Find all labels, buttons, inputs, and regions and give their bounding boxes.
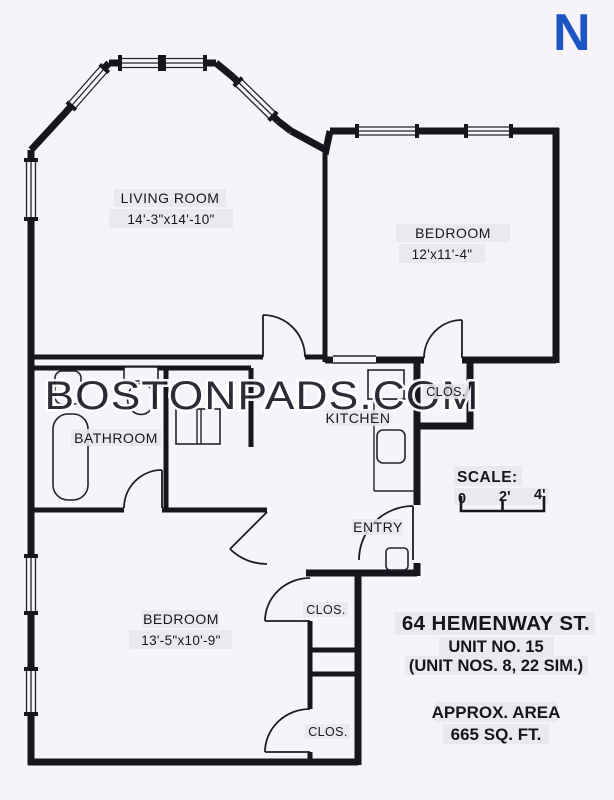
floor-plan-svg: BOSTONPADS.COM LIVING ROOM 14'-3"x14'-10… bbox=[0, 0, 614, 800]
address-similar-units: (UNIT NOS. 8, 22 SIM.) bbox=[409, 657, 583, 675]
floor-plan-page: BOSTONPADS.COM LIVING ROOM 14'-3"x14'-10… bbox=[0, 0, 614, 800]
bedroom1-window-1 bbox=[357, 124, 417, 138]
bedroom1-label: BEDROOM bbox=[415, 225, 491, 241]
kitchen-sink-fixture bbox=[377, 430, 405, 463]
bathroom-label: BATHROOM bbox=[74, 430, 158, 446]
bedroom2-window-2 bbox=[24, 669, 38, 714]
bay-window-right bbox=[234, 78, 277, 121]
living-room-label: LIVING ROOM bbox=[121, 190, 220, 206]
north-indicator: N bbox=[553, 4, 591, 62]
bedroom1-window-2 bbox=[466, 124, 511, 138]
address-block: 64 HEMENWAY ST. UNIT NO. 15 (UNIT NOS. 8… bbox=[395, 612, 595, 744]
living-room-door bbox=[263, 315, 305, 357]
bathroom-door bbox=[124, 470, 162, 508]
bedroom2-door bbox=[230, 512, 267, 564]
bedroom2-window-1 bbox=[24, 556, 38, 613]
address-area-label: APPROX. AREA bbox=[432, 703, 561, 722]
cased-opening bbox=[333, 356, 376, 363]
bedroom1-closet-label: CLOS. bbox=[426, 385, 466, 399]
scale-tick-2: 2' bbox=[499, 489, 511, 505]
bedroom2-upper-closet-label: CLOS. bbox=[306, 603, 346, 617]
bay-window-left bbox=[67, 65, 109, 111]
kitchen-label: KITCHEN bbox=[326, 410, 391, 426]
bedroom2-dims: 13'-5"x10'-9" bbox=[141, 633, 220, 648]
living-room-window bbox=[24, 160, 38, 219]
bedroom2-label: BEDROOM bbox=[143, 611, 219, 627]
bedroom2-lower-closet-label: CLOS. bbox=[308, 725, 348, 739]
living-room-dims: 14'-3"x14'-10" bbox=[127, 212, 214, 227]
watermark: BOSTONPADS.COM bbox=[45, 374, 480, 418]
address-area-value: 665 SQ. FT. bbox=[451, 725, 542, 744]
bay-window-top bbox=[120, 55, 205, 71]
scale-bar: SCALE: 0 2' 4' bbox=[454, 466, 549, 511]
bedroom1-closet-door bbox=[424, 320, 462, 358]
bedroom1-dims: 12'x11'-4" bbox=[412, 247, 473, 262]
address-street: 64 HEMENWAY ST. bbox=[402, 612, 590, 635]
water-heater-fixture bbox=[386, 548, 408, 570]
address-unit: UNIT NO. 15 bbox=[448, 638, 543, 656]
entry-label: ENTRY bbox=[353, 519, 403, 535]
bedroom2-lower-closet-door bbox=[265, 709, 310, 752]
bathtub-fixture bbox=[53, 414, 88, 500]
scale-label: SCALE: bbox=[457, 469, 518, 486]
